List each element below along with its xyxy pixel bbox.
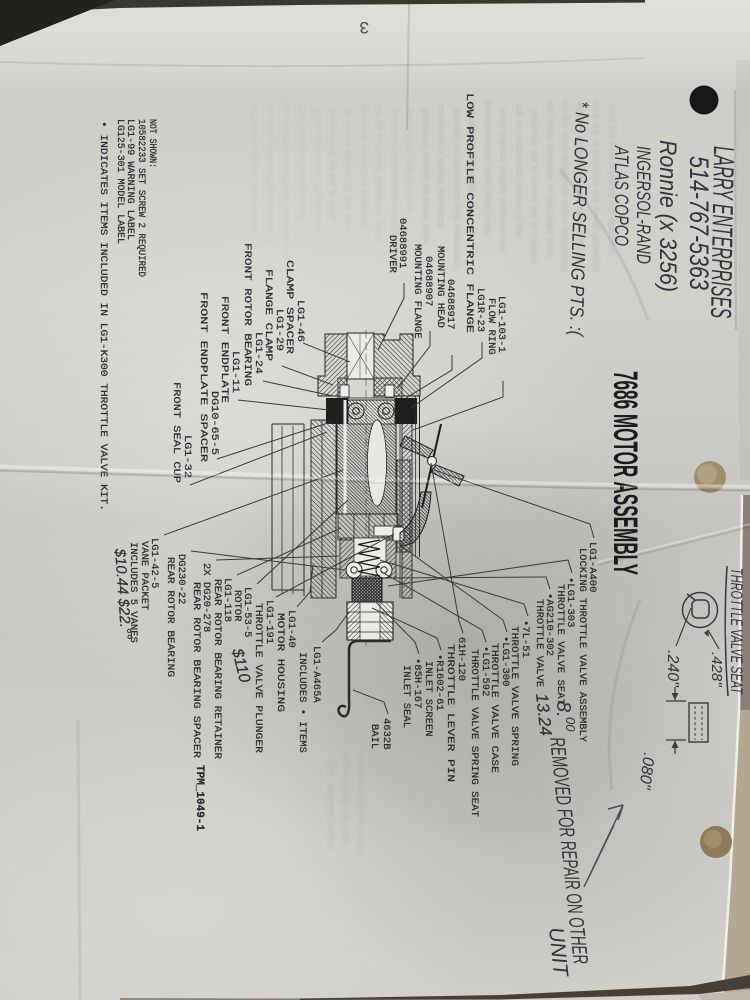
svg-text:.428": .428" — [708, 652, 725, 687]
svg-text:04688907: 04688907 — [422, 256, 434, 306]
svg-text:VANE PACKET: VANE PACKET — [138, 541, 150, 610]
svg-text:snoitcurtsni ytefas tnatroqmi: snoitcurtsni ytefas tnatroqmi — [435, 104, 446, 229]
svg-text:REAR ROTOR BEARING SPACER: REAR ROTOR BEARING SPACER — [190, 582, 202, 759]
svg-text:LG1-32: LG1-32 — [181, 435, 193, 478]
svg-text:DRIVER: DRIVER — [386, 235, 398, 274]
svg-text:ylno seilqqus betimil: ylno seilqqus betimil — [325, 760, 336, 850]
svg-text:MOUNTING FLANGE: MOUNTING FLANGE — [411, 244, 423, 339]
svg-text:LG1-29: LG1-29 — [273, 309, 285, 351]
svg-text:tnemqiuqe sidt gnisu ro: tnemqiuqe sidt gnisu ro — [404, 108, 415, 212]
svg-text:3: 3 — [360, 18, 369, 37]
svg-text:evitatneserqer selas lacol ruo: evitatneserqer selas lacol ruoy — [482, 100, 493, 235]
svg-text:edt rebnu beriaqer ro becalqer: edt rebnu beriaqer ro becalqer stinu — [544, 100, 555, 258]
svg-text:isq 09 erusserq gnitareqo beta: isq 09 erusserq gnitareqo betar — [373, 104, 384, 243]
svg-text:61H-120: 61H-120 — [455, 637, 467, 681]
svg-text:eldaliava era stik riaqer: eldaliava era stik riaqer — [355, 752, 366, 855]
svg-text:FRONT ENDPLATE: FRONT ENDPLATE — [218, 296, 230, 403]
svg-text:10582233 SET SCREW 2 REQUIRED: 10582233 SET SCREW 2 REQUIRED — [135, 119, 147, 277]
svg-text:ATLAS COPCO: ATLAS COPCO — [610, 145, 631, 246]
svg-text:UNIT: UNIT — [544, 926, 572, 979]
svg-text:514-767-5363: 514-767-5363 — [684, 156, 714, 290]
svg-text:MOTOR HOUSING: MOTOR HOUSING — [274, 613, 286, 712]
svg-text:•85H-167: •85H-167 — [411, 658, 423, 708]
svg-text:slavretni raluger ta etacirdul: slavretni raluger ta etacirdul — [358, 104, 369, 227]
svg-text:THROTTLE LEVER PIN: THROTTLE LEVER PIN — [444, 644, 456, 782]
svg-text:•LG1-300: •LG1-300 — [499, 636, 511, 686]
svg-text:redmun trap yd redro: redmun trap yd redro — [340, 752, 351, 846]
svg-text:ylno straq tnemecalqer eniuneg: ylno straq tnemecalqer eniuneg esu — [280, 102, 291, 260]
svg-text:INGERSOL-RAND: INGERSOL-RAND — [632, 146, 653, 264]
svg-text:Ronnie (x 3256): Ronnie (x 3256) — [654, 140, 681, 292]
svg-text:TPM_1049-1: TPM_1049-1 — [193, 765, 205, 831]
svg-text:egamab ro raew rof tceqsni: egamab ro raew rof tceqsni — [312, 108, 323, 229]
svg-text:THROTTLE VALVE SEAT: THROTTLE VALVE SEAT — [554, 584, 566, 705]
svg-text:7686 MOTOR ASSEMBLY: 7686 MOTOR ASSEMBLY — [606, 371, 644, 575]
svg-text:LG1-40: LG1-40 — [285, 610, 297, 648]
svg-text:NOT SHOWN:: NOT SHOWN: — [146, 119, 158, 168]
svg-text:FRONT SEAL CUP: FRONT SEAL CUP — [170, 382, 182, 483]
svg-text:FLOW RING: FLOW RING — [485, 298, 497, 355]
svg-text:•R1602-61: •R1602-61 — [433, 654, 445, 711]
svg-text:REAR ROTOR BEARING RETAINER: REAR ROTOR BEARING RETAINER — [211, 579, 223, 760]
svg-text:ruoy tcatnoc esaelq redmun tra: ruoy tcatnoc esaelq redmun trap — [497, 108, 508, 252]
svg-text:FRONT ENDPLATE SPACER: FRONT ENDPLATE SPACER — [197, 292, 209, 463]
svg-text:• INDICATES ITEMS INCLUDED IN: • INDICATES ITEMS INCLUDED IN LG1-K300 T… — [97, 121, 109, 511]
svg-text:THROTTLE VALVE SEAT: THROTTLE VALVE SEAT — [727, 568, 746, 695]
svg-text:13.24: 13.24 — [532, 692, 555, 736]
svg-text:launam ecnanetniam bna noitare: launam ecnanetniam bna noitareqO — [451, 108, 462, 267]
svg-text:LG1-11: LG1-11 — [229, 351, 241, 393]
svg-text:•LG1-592: •LG1-592 — [479, 646, 491, 696]
svg-text:$110: $110 — [228, 646, 253, 685]
svg-text:LG1-24: LG1-24 — [252, 332, 264, 374]
svg-text:DG10-65-5: DG10-65-5 — [208, 391, 220, 455]
svg-text:THROTTLE VALVE: THROTTLE VALVE — [533, 599, 545, 687]
svg-text:FRONT ROTOR BEARING: FRONT ROTOR BEARING — [241, 243, 253, 386]
svg-text:LG125-301 MODEL LABEL: LG125-301 MODEL LABEL — [114, 119, 126, 244]
svg-text:4632B: 4632B — [380, 718, 392, 750]
svg-text:ytnarraw edt fo smret edt ot t: ytnarraw edt fo smret edt ot tcejdus — [528, 108, 539, 264]
svg-text:THROTTLE VALVE PLUNGER: THROTTLE VALVE PLUNGER — [252, 603, 264, 754]
svg-text:THROTTLE VALVE SPRING SEAT: THROTTLE VALVE SPRING SEAT — [468, 649, 480, 817]
svg-text:LOCKING THROTTLE VALVE ASSEMBL: LOCKING THROTTLE VALVE ASSEMBLY — [576, 548, 588, 743]
svg-text:gnitareqo erofed ylluferac bae: gnitareqo erofed ylluferac baer — [420, 108, 431, 244]
svg-text:lio rotom tdgiew 01 esu ylno: lio rotom tdgiew 01 esu ylno — [342, 108, 353, 232]
svg-text:INLET SEAL: INLET SEAL — [400, 665, 412, 728]
svg-text:REAR ROTOR BEARING: REAR ROTOR BEARING — [164, 557, 176, 677]
svg-text:INLET SCREEN: INLET SCREEN — [422, 661, 434, 737]
svg-text:straq melborq ecalqer bna: straq melborq ecalqer bna — [296, 104, 307, 221]
svg-text:•7L-51: •7L-51 — [519, 620, 531, 658]
svg-text:LOW PROFILE CONCENTRIC FLANGE: LOW PROFILE CONCENTRIC FLANGE — [463, 93, 475, 333]
svg-text:LG1-191: LG1-191 — [263, 600, 275, 644]
svg-text:ytnarraw edt biov yam eruliaf: ytnarraw edt biov yam eruliaf — [248, 104, 259, 232]
svg-text:LG1R-23: LG1R-23 — [474, 288, 486, 332]
svg-text:ecnamrofreq mumitqo erusne ot: ecnamrofreq mumitqo erusne ot — [264, 102, 275, 244]
svg-text:MOUNTING HEAD: MOUNTING HEAD — [434, 246, 446, 328]
svg-text:INCLUDES • ITEMS: INCLUDES • ITEMS — [296, 652, 308, 753]
svg-text:LG1-46: LG1-46 — [294, 300, 306, 342]
svg-text:noitcennoc ria edt ta yliab: noitcennoc ria edt ta yliab — [327, 108, 338, 222]
svg-text:.080": .080" — [635, 752, 657, 792]
svg-text:BAIL: BAIL — [368, 724, 380, 749]
svg-text:LG1-A465A: LG1-A465A — [310, 646, 322, 703]
svg-text:DG230-22: DG230-22 — [175, 554, 187, 604]
svg-text:.240": .240" — [664, 650, 681, 688]
svg-text:edt ta noitamrofni erom rof ll: edt ta noitamrofni erom rof llac — [513, 104, 524, 239]
